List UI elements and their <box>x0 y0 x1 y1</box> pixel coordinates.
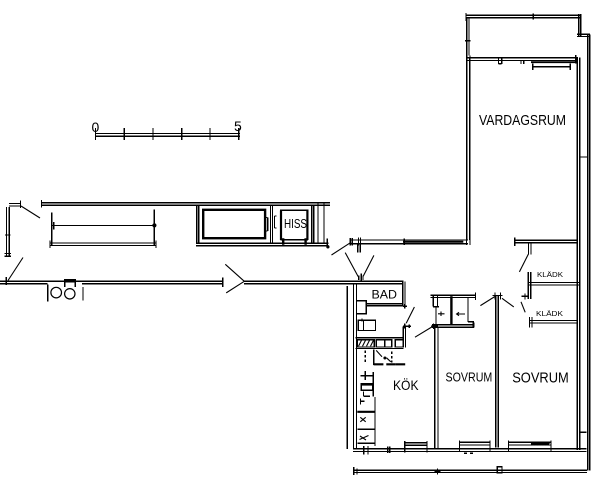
svg-text:SOVRUM: SOVRUM <box>512 370 569 387</box>
svg-text:BAD: BAD <box>372 290 398 302</box>
svg-text:KLÄDK: KLÄDK <box>537 270 563 279</box>
svg-text:HISS: HISS <box>284 216 307 231</box>
svg-text:5: 5 <box>234 118 242 134</box>
svg-text:0: 0 <box>92 119 100 135</box>
svg-text:KÖK: KÖK <box>393 376 419 393</box>
svg-text:VARDAGSRUM: VARDAGSRUM <box>479 112 566 129</box>
svg-text:KLÄDK: KLÄDK <box>536 309 563 318</box>
svg-text:SOVRUM: SOVRUM <box>446 369 493 384</box>
